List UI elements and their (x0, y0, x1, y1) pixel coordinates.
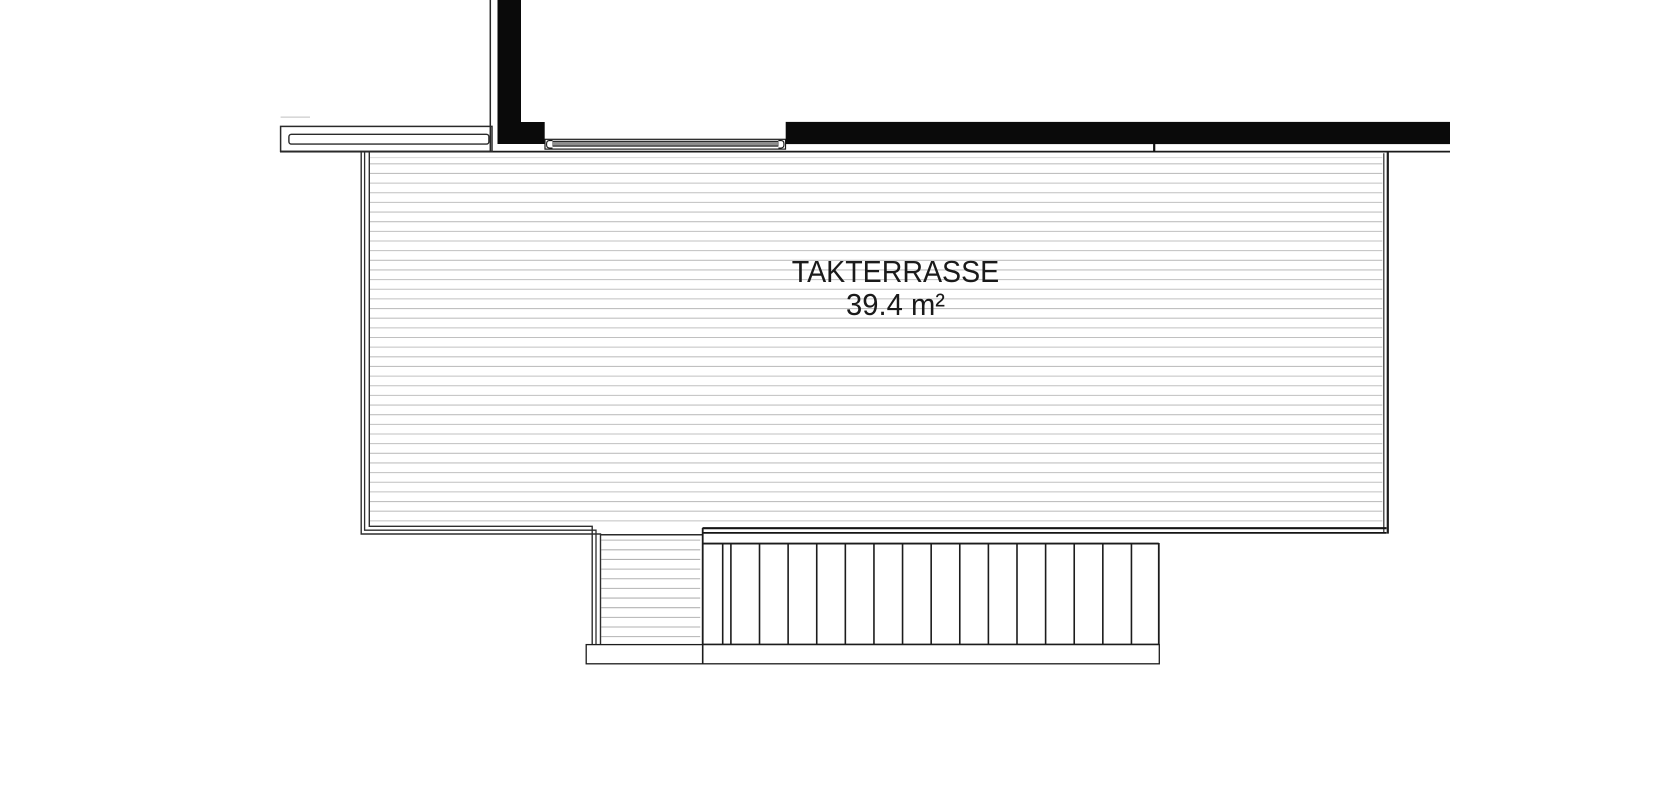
svg-text:39.4 m²: 39.4 m² (846, 287, 945, 322)
svg-text:TAKTERRASSE: TAKTERRASSE (792, 254, 1000, 289)
